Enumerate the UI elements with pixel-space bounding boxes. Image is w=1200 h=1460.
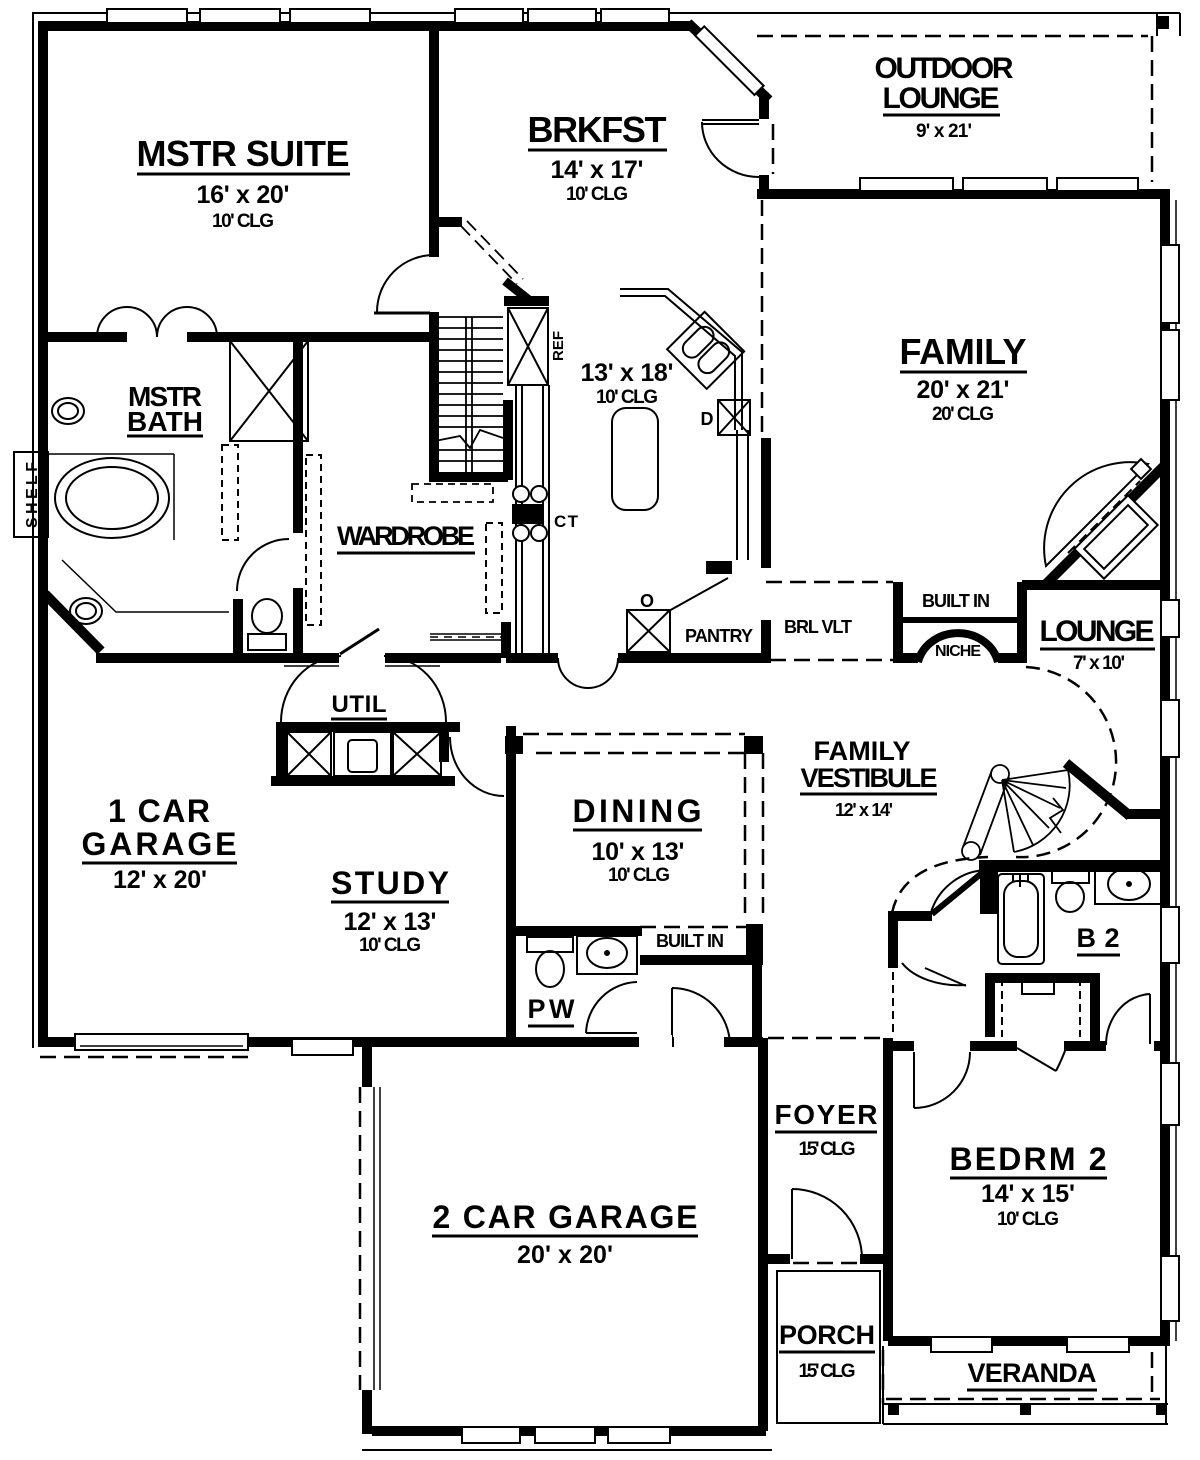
- svg-text:UTIL: UTIL: [332, 691, 387, 718]
- svg-text:LOUNGE: LOUNGE: [1040, 615, 1155, 648]
- svg-text:OUTDOOR: OUTDOOR: [875, 52, 1014, 85]
- svg-text:12' x 13': 12' x 13': [344, 908, 437, 936]
- svg-text:VERANDA: VERANDA: [968, 1358, 1097, 1388]
- svg-text:15' CLG: 15' CLG: [799, 1139, 856, 1160]
- svg-text:PW: PW: [528, 994, 576, 1024]
- svg-text:12' x 20': 12' x 20': [113, 866, 207, 894]
- svg-text:15' CLG: 15' CLG: [799, 1361, 856, 1382]
- svg-text:7' x 10': 7' x 10': [1073, 653, 1125, 674]
- svg-text:10' CLG: 10' CLG: [608, 865, 670, 886]
- svg-text:20' x 20': 20' x 20': [517, 1241, 613, 1269]
- svg-text:FOYER: FOYER: [775, 1099, 878, 1130]
- svg-text:NICHE: NICHE: [935, 643, 981, 660]
- svg-text:VESTIBULE: VESTIBULE: [801, 763, 938, 793]
- svg-text:PANTRY: PANTRY: [685, 626, 753, 646]
- svg-text:FAMILY: FAMILY: [900, 331, 1027, 372]
- svg-text:BUILT IN: BUILT IN: [656, 931, 724, 951]
- svg-text:B 2: B 2: [1077, 923, 1120, 953]
- svg-text:BRKFST: BRKFST: [528, 109, 667, 150]
- svg-text:BRL VLT: BRL VLT: [784, 617, 852, 637]
- svg-text:16' x 20': 16' x 20': [197, 181, 290, 209]
- svg-text:20' CLG: 20' CLG: [932, 404, 994, 425]
- svg-text:10' x 13': 10' x 13': [592, 838, 685, 866]
- svg-text:PORCH: PORCH: [779, 1320, 875, 1350]
- svg-text:14' x 15': 14' x 15': [981, 1180, 1075, 1208]
- svg-text:LOUNGE: LOUNGE: [883, 82, 1000, 115]
- svg-text:MSTR SUITE: MSTR SUITE: [137, 133, 350, 174]
- svg-text:STUDY: STUDY: [331, 865, 449, 901]
- svg-text:9' x 21': 9' x 21': [916, 121, 972, 142]
- svg-text:FAMILY: FAMILY: [814, 736, 911, 766]
- svg-text:10' CLG: 10' CLG: [997, 1209, 1059, 1230]
- svg-text:12' x 14': 12' x 14': [835, 800, 893, 820]
- svg-text:20' x 21': 20' x 21': [917, 376, 1010, 404]
- svg-text:BUILT IN: BUILT IN: [922, 591, 990, 611]
- svg-text:10' CLG: 10' CLG: [212, 211, 274, 232]
- svg-text:REF: REF: [550, 331, 567, 361]
- svg-text:SHELF: SHELF: [24, 462, 41, 528]
- svg-text:1 CAR: 1 CAR: [108, 793, 210, 829]
- svg-text:WARDROBE: WARDROBE: [337, 521, 475, 551]
- svg-text:10' CLG: 10' CLG: [596, 387, 658, 408]
- svg-text:14' x 17': 14' x 17': [551, 156, 644, 184]
- svg-text:DINING: DINING: [573, 793, 702, 829]
- svg-text:10' CLG: 10' CLG: [566, 184, 628, 205]
- svg-text:D: D: [701, 409, 714, 429]
- svg-text:2 CAR GARAGE: 2 CAR GARAGE: [433, 1199, 698, 1235]
- svg-text:O: O: [640, 591, 654, 611]
- svg-text:BATH: BATH: [127, 406, 203, 437]
- svg-text:10' CLG: 10' CLG: [359, 935, 421, 956]
- svg-text:13' x 18': 13' x 18': [581, 359, 674, 387]
